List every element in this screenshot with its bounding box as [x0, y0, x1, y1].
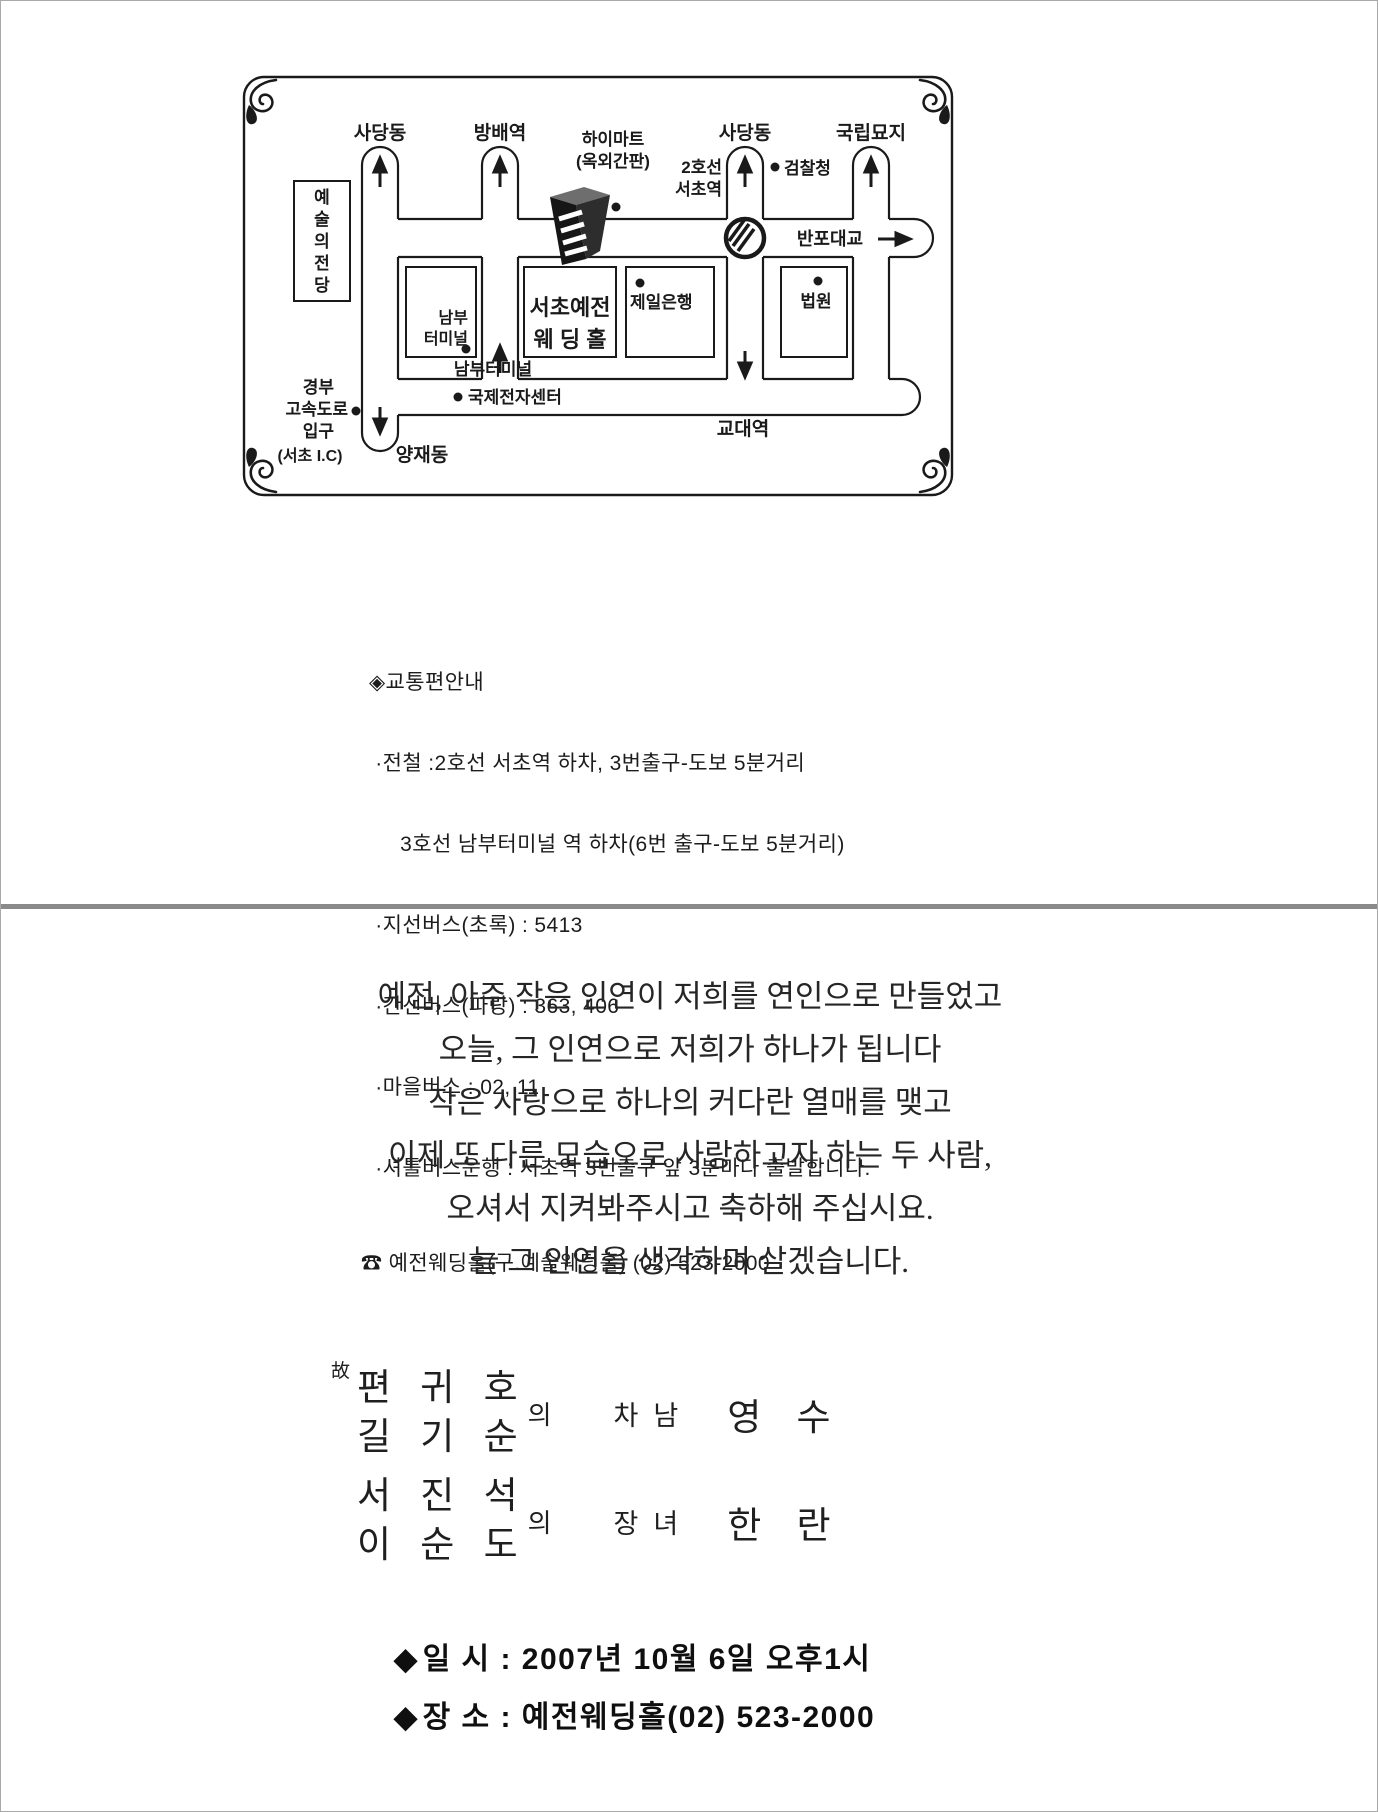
- message-line: 예전, 아주 작은 인연이 저희를 연인으로 만들었고: [1, 970, 1378, 1023]
- bride-family-row: 서 진 석 이 순 도 의 장녀 한 란: [357, 1475, 831, 1569]
- electronics-dot: [454, 393, 463, 402]
- subway-station-icon: [726, 219, 764, 257]
- map-label-wedding-hall-1: 서초예전: [530, 295, 611, 320]
- map-label-court: 법원: [800, 292, 831, 311]
- up-arrow-icon: [739, 158, 751, 172]
- corner-flourish-icon: [920, 448, 950, 492]
- map-label-sadang-right: 사당동: [719, 122, 771, 144]
- corner-flourish-icon: [246, 448, 276, 492]
- groom-name: 영 수: [727, 1387, 830, 1441]
- map-label-jeil-bank: 제일은행: [630, 293, 693, 312]
- map-label-himart: 하이마트: [582, 130, 645, 149]
- map-label-gyeongbu-1: 경부: [303, 378, 335, 397]
- down-arrow-icon: [374, 419, 386, 433]
- event-venue: 장 소 : 예전웨딩홀(02) 523-2000: [423, 1701, 876, 1734]
- groom-relation: 차남: [614, 1394, 694, 1433]
- groom-father-name: 편 귀 호: [357, 1368, 518, 1409]
- map-label-gyodae: 교대역: [717, 418, 769, 440]
- map-label-gyeongbu-3: 입구: [303, 422, 335, 441]
- up-arrow-icon: [494, 346, 506, 360]
- map-label-nambu-terminal-road: 남부터미널: [454, 360, 532, 379]
- wedding-invitation-page: 사당동 방배역 사당동 국립묘지 하이마트 (옥외간판) 2호선 서초역 검찰청…: [0, 0, 1378, 1812]
- prosecutors-dot: [771, 163, 780, 172]
- down-arrow-icon: [739, 363, 751, 377]
- map-label-yangjae: 양재동: [396, 444, 448, 466]
- map-label-intl-electronics: 국제전자센터: [468, 388, 562, 407]
- groom-mother-name: 길 기 순: [357, 1417, 518, 1458]
- map-label-arts-center: 당: [314, 276, 330, 295]
- possessive-particle: 의: [528, 1503, 552, 1540]
- possessive-particle: 의: [528, 1395, 552, 1432]
- transport-line-subway2: 3호선 남부터미널 역 하차(6번 출구-도보 5분거리): [369, 831, 871, 858]
- section-divider: [1, 904, 1378, 909]
- corner-flourish-icon: [920, 80, 950, 124]
- map-label-gyeongbu-2: 고속도로: [285, 400, 348, 419]
- message-line: 작은 사랑으로 하나의 커다란 열매를 맺고: [1, 1076, 1378, 1129]
- bride-parents: 서 진 석 이 순 도: [357, 1475, 518, 1569]
- map-label-arts-center: 전: [314, 254, 330, 273]
- map-label-wedding-hall-2: 웨 딩 홀: [534, 327, 607, 352]
- bride-mother-name: 이 순 도: [357, 1525, 518, 1566]
- map-label-prosecutors: 검찰청: [784, 158, 831, 178]
- wedding-hall-building-icon: [550, 187, 610, 265]
- bride-name: 한 란: [727, 1495, 830, 1549]
- deceased-mark: 故: [331, 1361, 350, 1384]
- location-map: 사당동 방배역 사당동 국립묘지 하이마트 (옥외간판) 2호선 서초역 검찰청…: [230, 61, 966, 511]
- map-label-line2: 2호선: [681, 158, 722, 177]
- groom-parents: 故편 귀 호 길 기 순: [357, 1367, 518, 1461]
- map-label-arts-center: 의: [314, 232, 330, 251]
- groom-father-line: 故편 귀 호: [357, 1367, 518, 1411]
- family-names: 故편 귀 호 길 기 순 의 차남 영 수 서 진 석 이 순 도 의 장녀: [357, 1367, 831, 1583]
- map-label-seocho-ic: (서초 I.C): [278, 447, 343, 465]
- corner-flourish-icon: [246, 80, 276, 124]
- map-label-sadang-left: 사당동: [354, 122, 406, 144]
- right-arrow-icon: [896, 233, 910, 245]
- diamond-icon: ◆: [394, 1643, 419, 1676]
- message-line: 이제 또 다른 모습으로 사랑하고자 하는 두 사람,: [1, 1129, 1378, 1182]
- map-label-seocho-station: 서초역: [675, 180, 722, 199]
- court-dot: [814, 277, 823, 286]
- groom-family-row: 故편 귀 호 길 기 순 의 차남 영 수: [357, 1367, 831, 1461]
- highway-dot: [352, 407, 361, 416]
- event-venue-line: ◆장 소 : 예전웨딩홀(02) 523-2000: [394, 1689, 875, 1747]
- map-label-arts-center: 예: [314, 188, 330, 207]
- groom-mother-line: 길 기 순: [357, 1416, 518, 1460]
- bride-relation: 장녀: [614, 1502, 694, 1541]
- map-label-banpo-bridge: 반포대교: [797, 229, 863, 249]
- event-date: 일 시 : 2007년 10월 6일 오후1시: [423, 1643, 872, 1676]
- diamond-icon: ◆: [394, 1701, 419, 1734]
- message-line: 오셔서 지켜봐주시고 축하해 주십시요.: [1, 1182, 1378, 1235]
- transport-line-green-bus: ·지선버스(초록) : 5413: [369, 912, 871, 939]
- map-label-terminal: 터미널: [424, 330, 468, 348]
- bride-father-name: 서 진 석: [357, 1476, 518, 1517]
- bride-father-line: 서 진 석: [357, 1475, 518, 1519]
- event-details: ◆일 시 : 2007년 10월 6일 오후1시 ◆장 소 : 예전웨딩홀(02…: [394, 1631, 875, 1747]
- transport-title: ◈교통편안내: [369, 669, 871, 696]
- bank-dot: [636, 279, 645, 288]
- invitation-message: 예전, 아주 작은 인연이 저희를 연인으로 만들었고 오늘, 그 인연으로 저…: [1, 970, 1378, 1288]
- bride-mother-line: 이 순 도: [357, 1524, 518, 1568]
- up-arrow-icon: [494, 158, 506, 172]
- message-line: 오늘, 그 인연으로 저희가 하나가 됩니다: [1, 1023, 1378, 1076]
- up-arrow-icon: [374, 158, 386, 172]
- map-label-bangbae: 방배역: [474, 122, 526, 144]
- message-line: 늘 그 인연을 생각하며 살겠습니다.: [1, 1235, 1378, 1288]
- event-date-line: ◆일 시 : 2007년 10월 6일 오후1시: [394, 1631, 875, 1689]
- himart-dot: [612, 203, 621, 212]
- transport-line-subway: ·전철 :2호선 서초역 하차, 3번출구-도보 5분거리: [369, 750, 871, 777]
- map-label-arts-center: 술: [314, 210, 330, 229]
- map-label-himart-sign: (옥외간판): [576, 152, 650, 171]
- map-label-nambu: 남부: [439, 309, 469, 327]
- map-label-cemetery: 국립묘지: [836, 122, 906, 144]
- up-arrow-icon: [865, 158, 877, 172]
